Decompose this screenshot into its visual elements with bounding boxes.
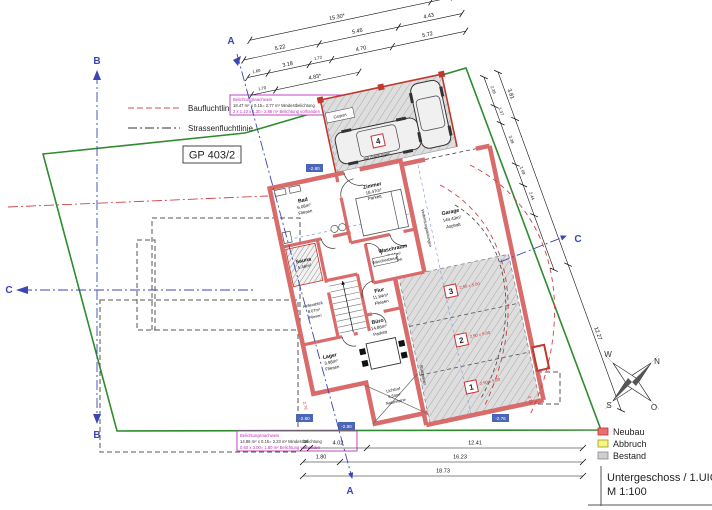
section-a-bottom-label: A xyxy=(346,486,353,497)
parcel-label: GP 403/2 xyxy=(183,146,241,163)
compass-n: N xyxy=(654,357,660,366)
note-top-l1: Belichtungsnachweis xyxy=(233,97,272,102)
dim-bot-1241: 12.41 xyxy=(468,441,482,447)
dim-top-160: 1.60 xyxy=(252,68,262,75)
title-line1: Untergeschoss / 1.UIG xyxy=(607,472,712,484)
room-garage-floor: Asphalt xyxy=(446,221,462,229)
compass-rose: W N S O xyxy=(604,350,660,412)
dim-right-381: 3.81 xyxy=(506,88,515,100)
dim-top-170: 1.70 xyxy=(258,85,268,92)
dim-right-1227: 12.27 xyxy=(592,326,602,341)
section-a-top-label: A xyxy=(227,36,234,47)
dim-top-572: 5.72 xyxy=(422,31,434,39)
dim-bot-1873: 18.73 xyxy=(436,469,450,475)
neubau-swatch xyxy=(598,428,608,435)
note-bot-l2: 14.86 m² x 0.15= 2.23 m² Mindestbelichtu… xyxy=(240,439,322,444)
dim-top-522: 5.22 xyxy=(274,44,286,52)
elev-3: -2.76 xyxy=(495,416,506,421)
compass-w: W xyxy=(604,350,612,359)
dim-right-169: 1.69 xyxy=(519,166,527,176)
dim-bot-180: 1.80 xyxy=(316,455,327,461)
dim-right-244: 2.44 xyxy=(528,191,536,201)
section-a-top-arrow xyxy=(233,56,241,66)
baufluchtlinie-label: Baufluchtlinie xyxy=(188,104,236,113)
floorplan-drawing: Baufluchtlinie Strassenfluchtlinie GP 40… xyxy=(0,0,712,510)
dim-top-1530: 15.30* xyxy=(329,13,347,22)
dim-bot-36: 36 xyxy=(304,439,309,444)
strassenfluchtlinie-label: Strassenfluchtlinie xyxy=(188,124,253,133)
building-plan: Zimmer 18.47m² Parkett Bad 6.08m² Fliese… xyxy=(251,62,555,447)
title-line2: M 1:100 xyxy=(607,486,647,498)
baufluchtlinie-line xyxy=(8,196,268,207)
dim-top-172: 1.72 xyxy=(314,55,324,62)
dim-right-339: 3.39 xyxy=(508,135,516,145)
elev-2: -2.80 xyxy=(341,424,352,429)
wall-dim-1: 2.76 xyxy=(302,401,309,411)
abbruch-swatch xyxy=(598,440,608,447)
note-top-l2: 18.47 m² x 0.15= 2.77 m² Mindestbelichtu… xyxy=(233,103,315,108)
compass-e: O xyxy=(651,403,657,412)
dim-bot-1623: 16.23 xyxy=(453,455,467,461)
floorplan-sheet: Baufluchtlinie Strassenfluchtlinie GP 40… xyxy=(0,0,712,510)
section-b-bottom-label: B xyxy=(93,430,100,441)
compass-s: S xyxy=(606,401,611,410)
section-c-left-label: C xyxy=(5,285,12,296)
dim-top-318: 3.18 xyxy=(282,61,294,69)
bestand-swatch xyxy=(598,452,608,459)
note-bot-l1: Belichtungsnachweis xyxy=(240,433,279,438)
section-b-top-label: B xyxy=(93,56,100,67)
dim-right-137: 1.37 xyxy=(497,107,505,117)
fill-legend: Neubau Abbruch Bestand xyxy=(598,427,647,461)
dim-right-239: 2.39 xyxy=(490,85,498,95)
abbruch-label: Abbruch xyxy=(613,439,647,449)
section-b-top-arrow xyxy=(93,70,101,80)
office-furniture xyxy=(358,336,408,371)
elev-1: -2.80 xyxy=(299,416,310,421)
section-c-left-arrow xyxy=(16,286,28,294)
dim-top-443: 4.43 xyxy=(423,12,435,20)
bed xyxy=(356,189,409,236)
dim-top-470: 4.70 xyxy=(355,45,367,53)
dim-top-546: 5.46 xyxy=(352,28,364,36)
note-top-l3: 2 x 1.10 x 1.30= 2.86 m² Belichtung vorh… xyxy=(233,109,321,114)
neubau-label: Neubau xyxy=(613,427,645,437)
title-block: Untergeschoss / 1.UIG M 1:100 xyxy=(588,466,712,506)
section-c-right-label: C xyxy=(574,234,581,245)
parcel-label-text: GP 403/2 xyxy=(189,150,235,162)
bestand-label: Bestand xyxy=(613,451,646,461)
verbindungsleitungen-label: Verbindungsleitungen xyxy=(420,209,433,248)
elev-4: -2.80 xyxy=(309,166,320,171)
